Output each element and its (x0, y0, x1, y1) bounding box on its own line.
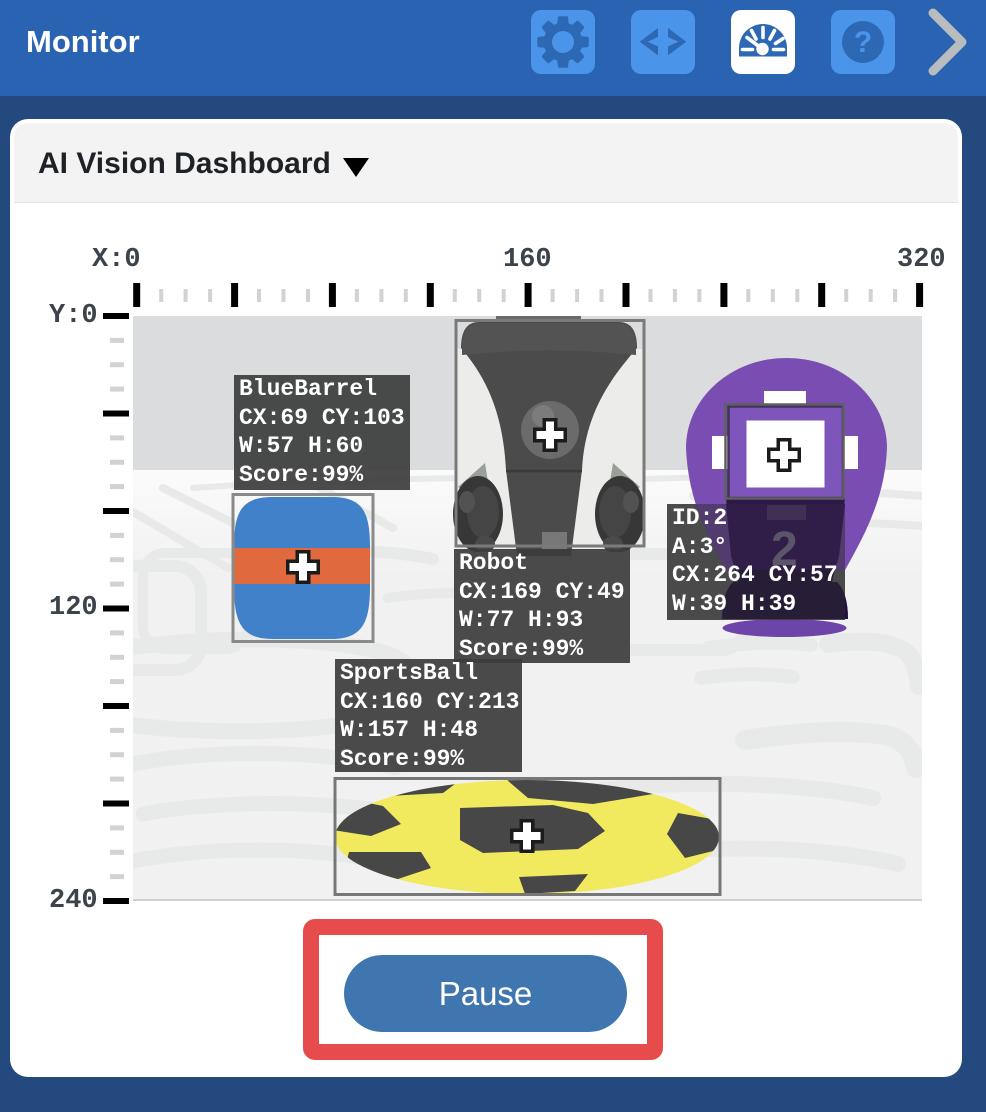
svg-text:?: ? (854, 26, 872, 59)
